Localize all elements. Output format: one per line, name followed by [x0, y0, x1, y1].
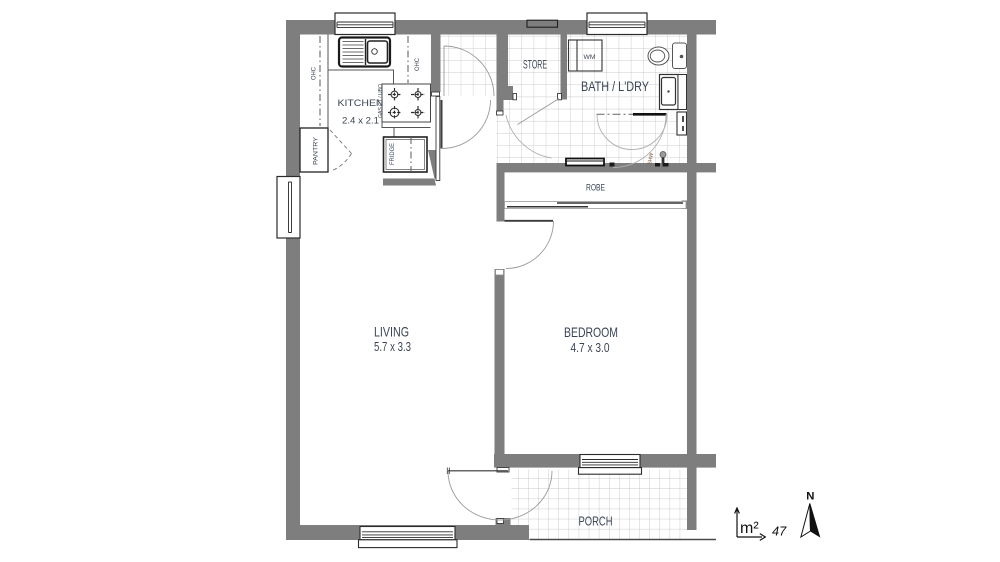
svg-text:PORCH: PORCH — [579, 515, 613, 529]
svg-text:N: N — [806, 491, 814, 503]
svg-text:OHC: OHC — [414, 57, 421, 71]
svg-text:BATH / L'DRY: BATH / L'DRY — [581, 79, 649, 94]
svg-text:WM: WM — [584, 55, 596, 61]
svg-text:KITCHEN: KITCHEN — [338, 98, 384, 108]
svg-text:47: 47 — [772, 524, 787, 539]
svg-text:FRIDGE: FRIDGE — [389, 143, 396, 165]
svg-text:m²: m² — [740, 520, 759, 537]
svg-text:OHC: OHC — [311, 66, 318, 80]
svg-text:PANTRY: PANTRY — [313, 137, 320, 165]
svg-text:BEDROOM: BEDROOM — [564, 324, 618, 340]
svg-text:2.4 x 2.1: 2.4 x 2.1 — [342, 116, 379, 126]
svg-text:5.7 x 3.3: 5.7 x 3.3 — [374, 339, 411, 354]
svg-text:LIVING: LIVING — [374, 323, 409, 339]
svg-text:STORE: STORE — [523, 60, 547, 72]
svg-text:ROBE: ROBE — [586, 183, 605, 194]
svg-text:4.7 x 3.0: 4.7 x 3.0 — [571, 340, 610, 355]
